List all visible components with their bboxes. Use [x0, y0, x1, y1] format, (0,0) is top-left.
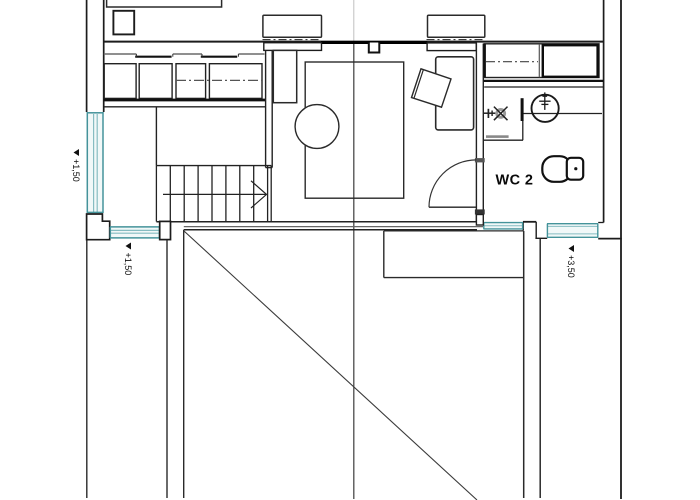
svg-text:+1,50: +1,50 — [123, 253, 133, 276]
svg-text:+3,50: +3,50 — [566, 255, 576, 278]
svg-text:WC 2: WC 2 — [496, 173, 534, 189]
svg-text:+1,50: +1,50 — [71, 159, 81, 182]
